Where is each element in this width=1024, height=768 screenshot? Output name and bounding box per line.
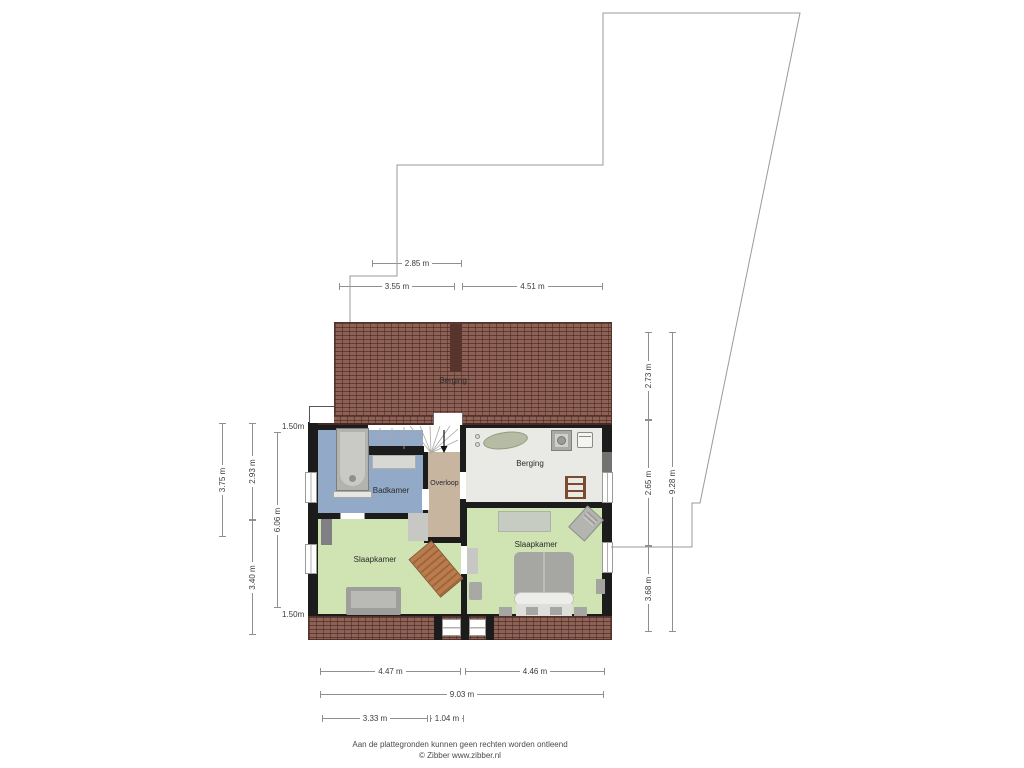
dim-clearance-top: 1.50m [282, 422, 304, 431]
roof-wall-stub [450, 324, 462, 372]
wall-post2 [461, 615, 469, 640]
roof-attic [334, 322, 612, 419]
wardrobe-icon [321, 519, 332, 545]
washing-machine-drum [557, 436, 566, 445]
window-bedroom-right [602, 542, 613, 573]
lounge-chair-headrest [582, 511, 598, 526]
window-bathroom-left [305, 472, 317, 503]
doorway-area [408, 513, 428, 541]
dim-clearance-bottom: 1.50m [282, 610, 304, 619]
nightstand-left-icon [499, 607, 512, 616]
dim-right-upper: 2.73 m [644, 332, 653, 420]
radiator-icon [596, 579, 605, 594]
dim-top-left: 3.55 m [339, 282, 455, 291]
bathtub-icon [336, 428, 369, 491]
door-leaf-icon [467, 548, 478, 574]
label-storage: Berging [505, 459, 555, 469]
footer-disclaimer-text: Aan de plattegronden kunnen geen rechten… [160, 739, 760, 750]
dim-left-upper: 2.93 m [248, 423, 257, 520]
surfboard-fin2 [475, 442, 480, 447]
dim-bottom-seg-mid: 1.04 m [430, 714, 464, 723]
dim-bottom-seg-left: 3.33 m [322, 714, 428, 723]
window-bottom-left [442, 619, 461, 636]
footer-disclaimer: Aan de plattegronden kunnen geen rechten… [160, 739, 760, 761]
bed-duvet [514, 552, 574, 594]
knee-wall [368, 446, 424, 455]
wall-post3 [486, 615, 494, 640]
laundry-basket-rim [579, 436, 591, 437]
bed-foot-pad [526, 607, 538, 615]
label-attic: Berging [428, 376, 478, 386]
nightstand-right-icon [574, 607, 587, 616]
label-bathroom: Badkamer [366, 486, 416, 496]
dim-left-outer: 3.75 m [218, 423, 227, 537]
roof-eave [318, 415, 612, 425]
double-bed-icon [514, 552, 574, 617]
label-bedroom-right: Slaapkamer [508, 540, 564, 550]
door-opening-bathroom-bedroom [340, 513, 365, 519]
surfboard-fin [475, 434, 480, 439]
window-bottom-right [469, 619, 486, 636]
dim-right-middle: 2.65 m [644, 420, 653, 546]
room-landing [428, 452, 460, 537]
sofa-seat [351, 591, 396, 608]
dim-bottom-left: 4.47 m [320, 667, 461, 676]
dim-top-right: 4.51 m [462, 282, 603, 291]
chair-icon [469, 582, 482, 600]
dim-left-lower: 3.40 m [248, 520, 257, 635]
door-opening-storage [460, 472, 466, 499]
stair-roof-opening [433, 413, 463, 425]
sofa-icon [346, 587, 401, 615]
floorplan-canvas: Berging Badkamer Overloop Berging Slaapk… [0, 0, 1024, 768]
ladder-icon [565, 476, 586, 499]
bathtub-drain [349, 475, 356, 482]
dormer-box [309, 406, 334, 423]
bed-foot-pad2 [550, 607, 562, 615]
vanity-counter-icon [372, 455, 416, 469]
label-bedroom-left: Slaapkamer [347, 555, 403, 565]
window-storage-right [602, 472, 613, 503]
door-storage-right [602, 452, 612, 472]
dim-right-lower: 3.68 m [644, 546, 653, 632]
window-bedroom-left [305, 544, 317, 574]
room-bathroom [318, 430, 423, 513]
dresser-icon [498, 511, 551, 532]
laundry-basket-icon [577, 432, 593, 448]
wall-post [434, 615, 442, 640]
dim-right-total: 9.28 m [668, 332, 677, 632]
door-opening-bathroom-landing [422, 489, 429, 510]
label-landing: Overloop [429, 479, 460, 489]
dim-left-inner: 6.06 m [273, 432, 282, 608]
footer-copyright: © Zibber www.zibber.nl [160, 750, 760, 761]
dim-bottom-total: 9.03 m [320, 690, 604, 699]
dim-top-width: 2.85 m [372, 259, 462, 268]
dim-bottom-right: 4.46 m [465, 667, 605, 676]
washing-machine-icon [551, 430, 572, 451]
